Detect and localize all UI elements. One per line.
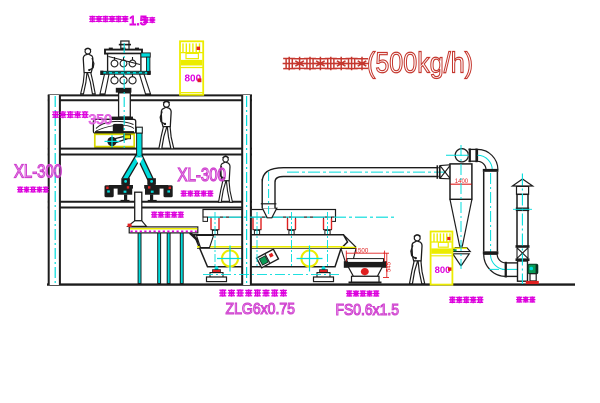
svg-text:XL-300: XL-300 [14,161,62,182]
svg-text:1400: 1400 [455,179,469,185]
svg-text:FS0.6x1.5: FS0.6x1.5 [336,302,400,319]
svg-text:350: 350 [89,111,113,127]
svg-text:1500: 1500 [355,247,369,254]
svg-text:(500kg/h): (500kg/h) [367,48,473,80]
svg-text:XL-300: XL-300 [178,164,227,185]
svg-text:545: 545 [387,261,393,272]
svg-text:ZLG6x0.75: ZLG6x0.75 [226,301,296,318]
